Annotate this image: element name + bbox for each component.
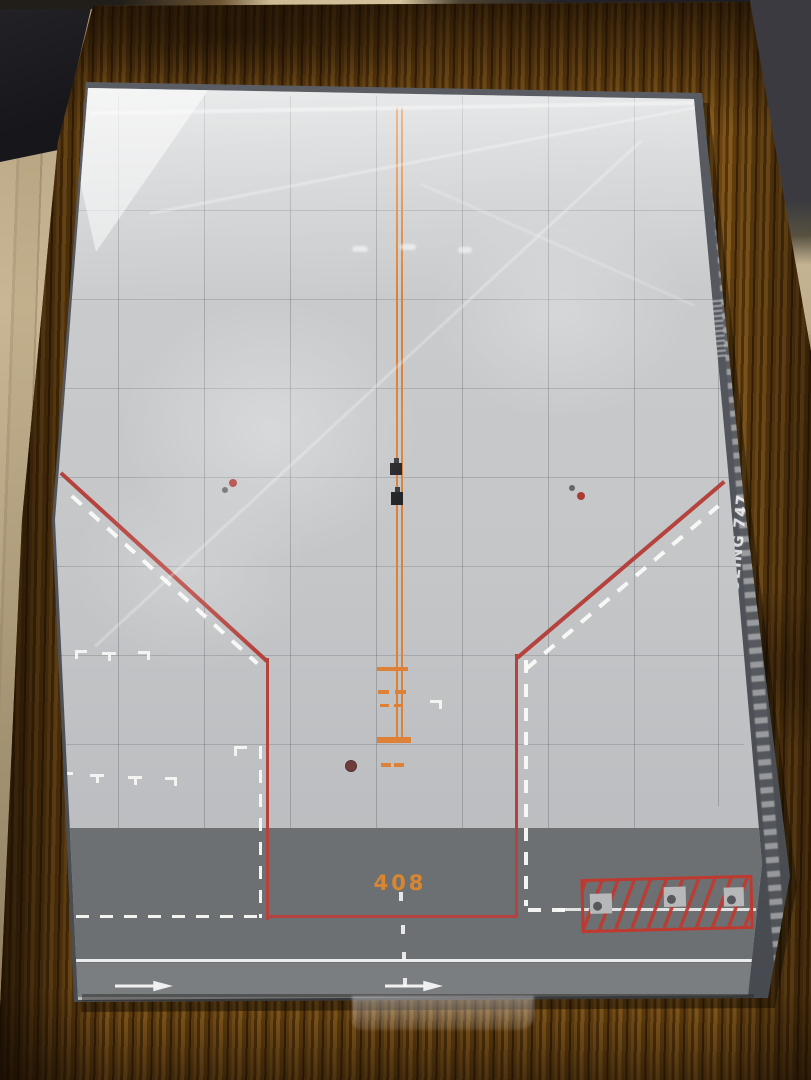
apron-mat: 408 bbox=[0, 0, 811, 1080]
center-dash bbox=[399, 892, 403, 901]
centerline-tick bbox=[394, 704, 403, 707]
center-dash bbox=[401, 925, 405, 934]
photo-scene: ANA BOEING 747 bbox=[0, 0, 811, 1080]
tie-down-point bbox=[667, 895, 676, 904]
maroon-dot bbox=[345, 760, 357, 772]
center-dash bbox=[402, 952, 406, 960]
plastic-glint bbox=[352, 246, 368, 252]
centerline-tick bbox=[378, 690, 389, 694]
white-dashed-line bbox=[259, 746, 263, 918]
parking-box-dashed bbox=[52, 915, 262, 919]
tie-down-point bbox=[593, 902, 602, 911]
centerline-tick bbox=[380, 704, 389, 707]
tie-down-square bbox=[664, 887, 686, 908]
centerline-tick bbox=[394, 763, 404, 767]
stop-line bbox=[62, 959, 758, 962]
white-dashed-line bbox=[525, 504, 719, 670]
white-dashed-line bbox=[528, 908, 570, 912]
red-boundary-line bbox=[266, 915, 518, 919]
shrink-wrapped-package: ANA BOEING 747 bbox=[0, 0, 811, 1080]
grid-line bbox=[54, 744, 744, 745]
plastic-glint bbox=[400, 244, 416, 250]
white-dashed-line bbox=[524, 660, 528, 906]
plastic-glint bbox=[458, 247, 472, 253]
centerline-tick bbox=[377, 737, 411, 743]
plastic-sheen bbox=[70, 470, 310, 670]
plastic-sheen bbox=[430, 200, 690, 420]
centerline-tick bbox=[381, 763, 391, 767]
tie-down-point bbox=[727, 895, 736, 904]
centerline-tick bbox=[377, 667, 408, 671]
blast-deflector-marking bbox=[580, 875, 753, 933]
gray-dot bbox=[569, 485, 575, 491]
centerline-tick bbox=[395, 690, 406, 694]
red-boundary-line bbox=[515, 654, 519, 918]
plastic-tail bbox=[352, 996, 534, 1030]
tie-down-square bbox=[724, 887, 744, 906]
tie-down-square bbox=[590, 893, 612, 914]
red-dot bbox=[577, 492, 585, 500]
red-boundary-line bbox=[266, 658, 270, 920]
